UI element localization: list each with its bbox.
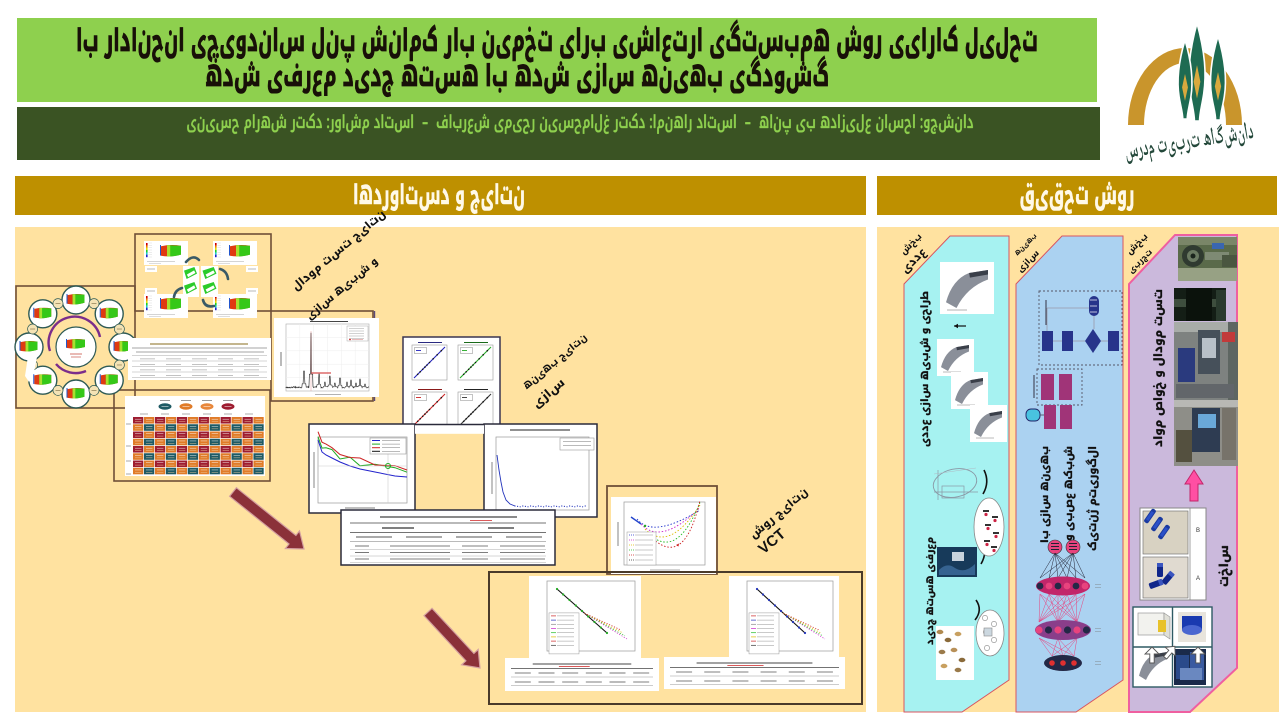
svg-text:A: A [1196,576,1200,582]
svg-text:B: B [1196,528,1200,534]
